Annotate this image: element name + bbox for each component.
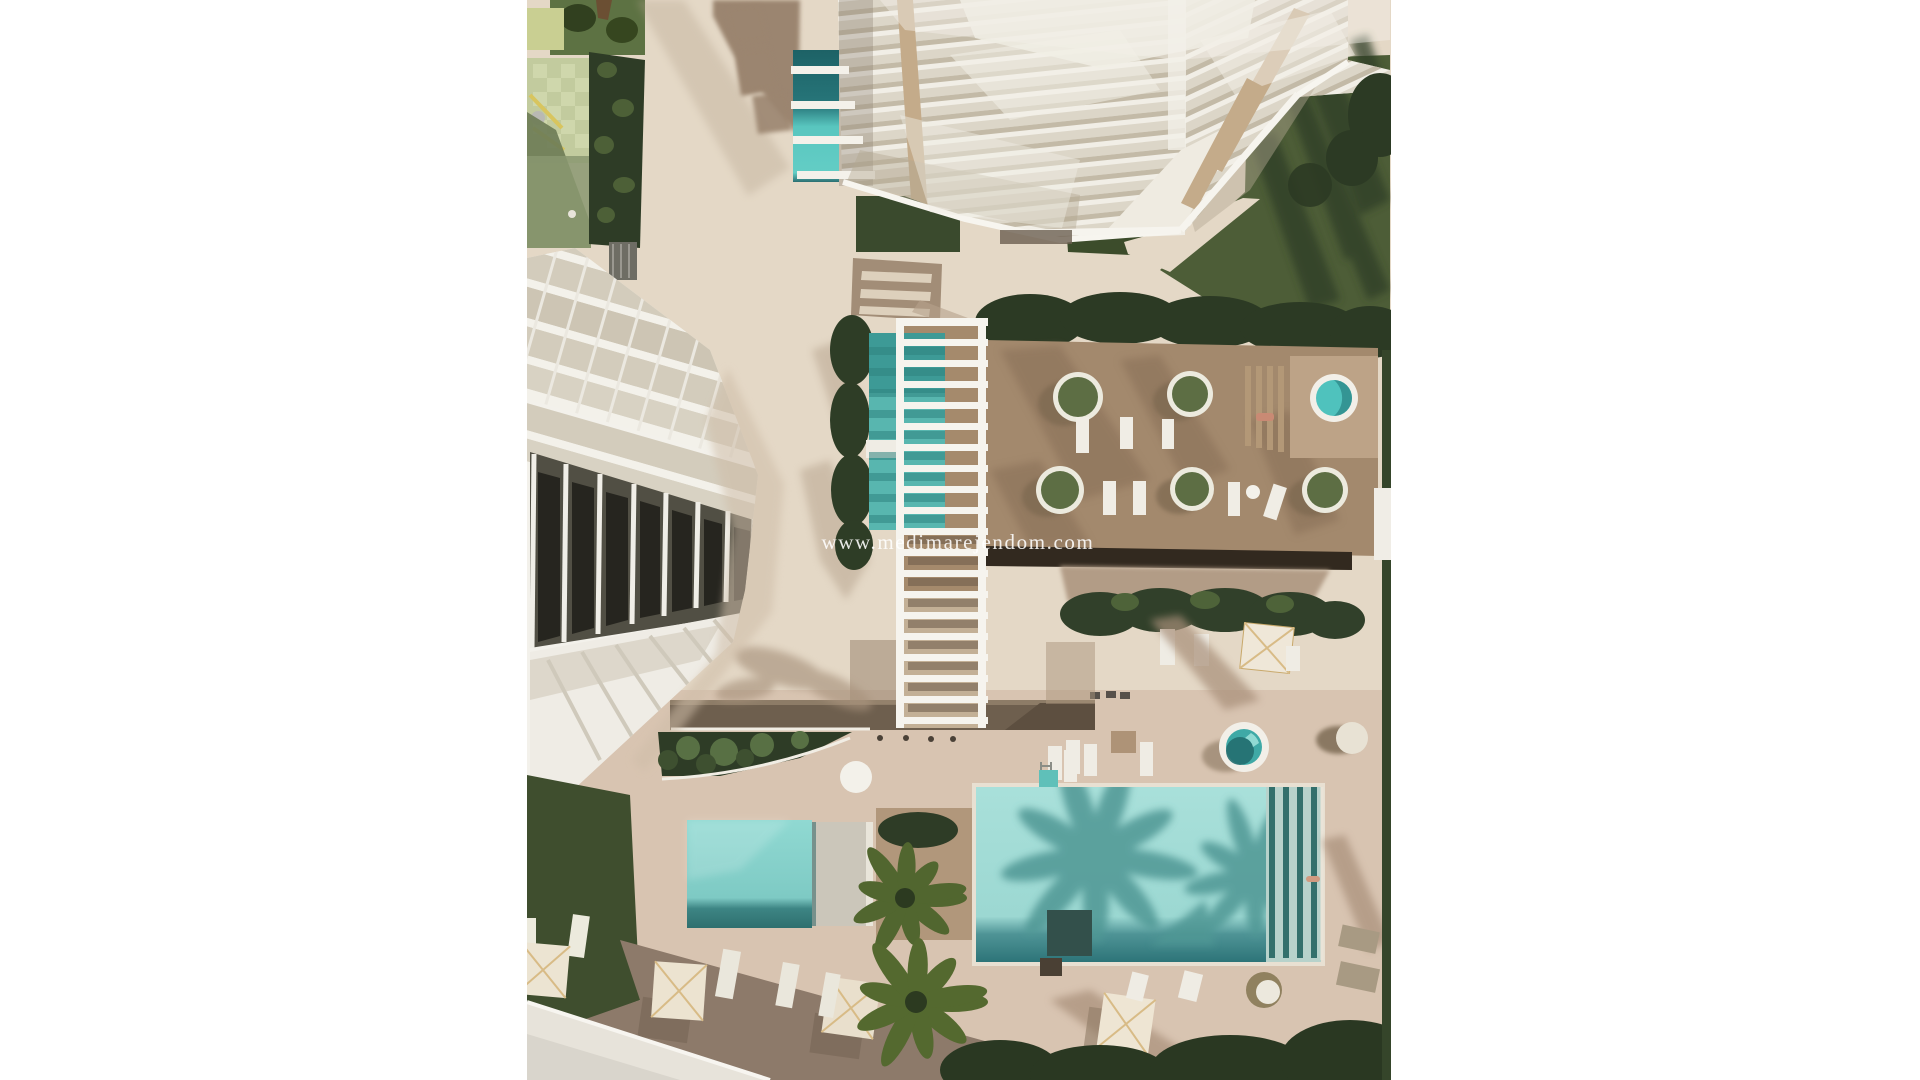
svg-text:www.medimarejendom.com: www.medimarejendom.com — [822, 530, 1095, 554]
